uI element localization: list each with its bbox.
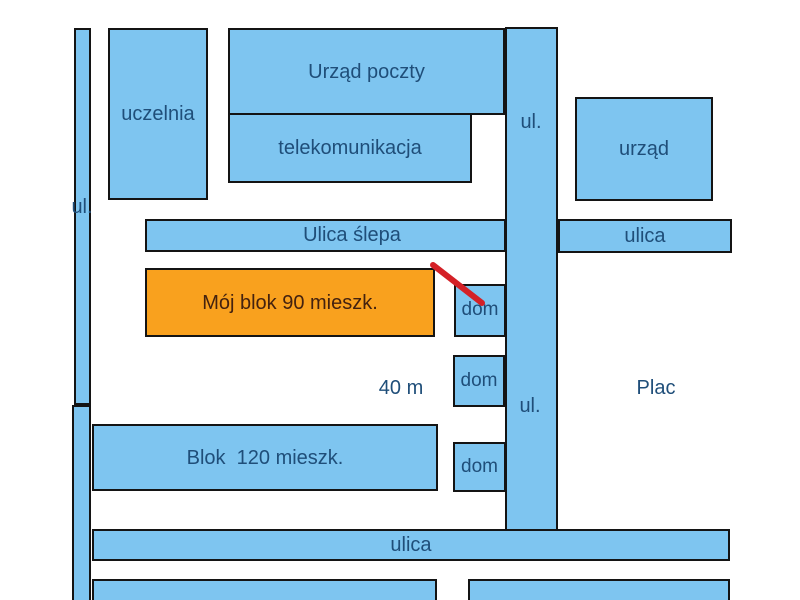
- building-label: uczelnia: [121, 103, 194, 125]
- building-label: telekomunikacja: [278, 137, 421, 159]
- building-label: Mój blok 90 mieszk.: [202, 292, 378, 314]
- building-uczelnia: uczelnia: [108, 28, 208, 200]
- square-annotation: Plac: [606, 377, 706, 399]
- street-label-dead-end: Ulica ślepa: [252, 224, 452, 246]
- street-label-center-ul-top: ul.: [507, 111, 555, 133]
- building-bottom-right-partial: [468, 579, 730, 600]
- building-label: dom: [461, 371, 498, 392]
- street-right-horizontal: ulica: [558, 219, 732, 253]
- building-house-3: dom: [453, 442, 506, 492]
- building-bottom-left-partial: [92, 579, 437, 600]
- street-label-center-ul-mid: ul.: [506, 395, 554, 417]
- street-label: ulica: [624, 225, 665, 247]
- street-label-left-ul: ul.: [58, 196, 106, 218]
- building-label: urząd: [619, 138, 669, 160]
- building-label: Urząd poczty: [308, 61, 425, 83]
- street-left-vertical-lower: [72, 405, 91, 600]
- building-telecom: telekomunikacja: [228, 113, 472, 183]
- building-label: Blok 120 mieszk.: [187, 447, 344, 469]
- neighborhood-map: ulica uczelnia Urząd poczty telekomunika…: [0, 0, 800, 600]
- building-my-block-highlighted: Mój blok 90 mieszk.: [145, 268, 435, 337]
- building-house-2: dom: [453, 355, 505, 407]
- building-post-office: Urząd poczty: [228, 28, 505, 115]
- street-bottom-horizontal: ulica: [92, 529, 730, 561]
- pointer-line: [433, 265, 482, 303]
- pointer-line-icon: [420, 250, 500, 320]
- street-label: ulica: [390, 534, 431, 556]
- building-office: urząd: [575, 97, 713, 201]
- building-block-120: Blok 120 mieszk.: [92, 424, 438, 491]
- street-center-vertical: [505, 27, 558, 530]
- distance-annotation: 40 m: [351, 377, 451, 399]
- building-label: dom: [461, 457, 498, 478]
